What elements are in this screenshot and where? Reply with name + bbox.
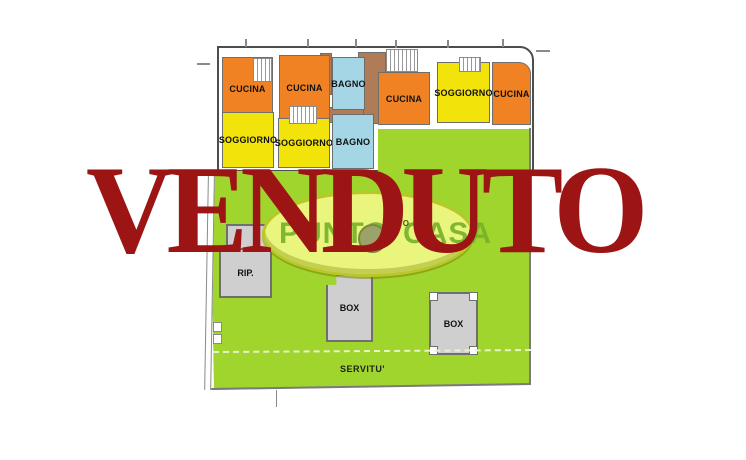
floor-plan-image: CUCINA CUCINA BAGNO CUCINA SOGGIORNO CUC… (0, 0, 746, 460)
wall-tick (355, 39, 357, 47)
room-kitchen-4: CUCINA (492, 62, 531, 125)
wall-tick (395, 40, 397, 48)
wall-tick (447, 40, 449, 48)
survey-mark (197, 63, 210, 65)
stairs (253, 58, 272, 82)
survey-mark (536, 50, 550, 52)
easement-label: SERVITU' (340, 364, 385, 374)
room-bath-1: BAGNO (332, 57, 365, 110)
box-corner (429, 292, 438, 301)
wall-notch (213, 322, 222, 332)
wall-tick (307, 39, 309, 47)
sold-stamp: VENDUTO (86, 148, 641, 274)
room-label: BOX (340, 303, 360, 313)
room-label: CUCINA (229, 84, 265, 94)
room-label: SOGGIORNO (434, 88, 492, 98)
wall-tick (502, 39, 504, 47)
wall-notch (213, 334, 222, 344)
room-label: CUCINA (493, 89, 529, 99)
box-corner (469, 292, 478, 301)
stairs (459, 57, 481, 72)
stairs (289, 106, 317, 124)
stairs (386, 49, 418, 72)
room-label: BOX (444, 319, 464, 329)
room-label: BAGNO (331, 79, 366, 89)
room-kitchen-3: CUCINA (378, 72, 430, 125)
survey-mark (276, 390, 277, 407)
room-label: CUCINA (386, 94, 422, 104)
room-label: CUCINA (286, 83, 322, 93)
wall-tick (245, 39, 247, 47)
garage-box-2: BOX (429, 292, 478, 355)
